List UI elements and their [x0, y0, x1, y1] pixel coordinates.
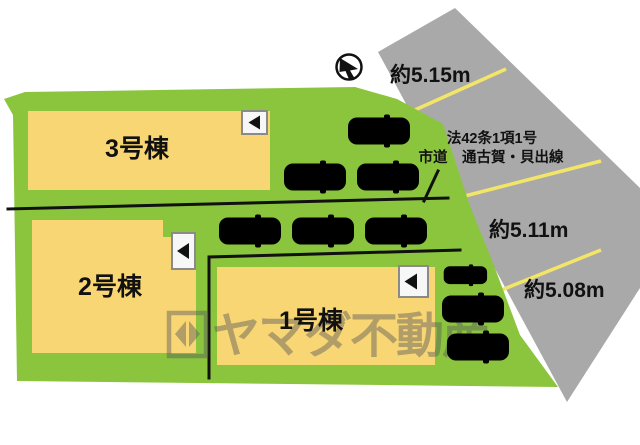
car-blue-icon — [348, 115, 410, 148]
car-red-icon — [219, 215, 281, 248]
road-width-label-1: 約5.15m — [390, 63, 471, 87]
car-blue-icon — [442, 293, 504, 326]
unit-3-label: 3号棟 — [105, 135, 170, 163]
site-plan: ヤマダ不動産 3号棟 2号棟 1号棟 約5.15m 法42条1項1号 市道 通古… — [0, 0, 640, 445]
road-width-label-3: 約5.08m — [524, 278, 605, 302]
site-plan-canvas: ヤマダ不動産 3号棟 2号棟 1号棟 約5.15m 法42条1項1号 市道 通古… — [0, 0, 640, 445]
car-blue-icon — [357, 161, 419, 194]
unit-1-label: 1号棟 — [279, 307, 344, 335]
direction-icon-unit-2 — [172, 233, 195, 269]
direction-icon-unit-1 — [399, 266, 428, 297]
car-red-icon — [444, 264, 487, 286]
road-designation-label: 法42条1項1号 — [447, 129, 537, 147]
direction-icon-unit-3 — [242, 111, 267, 134]
north-arrow-icon — [337, 55, 362, 81]
unit-2-label: 2号棟 — [78, 273, 143, 301]
car-red-icon — [365, 215, 427, 248]
car-blue-icon — [284, 161, 346, 194]
car-red-icon — [292, 215, 354, 248]
road-width-label-2: 約5.11m — [489, 218, 568, 242]
car-blue-icon — [447, 331, 509, 364]
road-name-label: 市道 通古賀・貝出線 — [419, 148, 564, 166]
